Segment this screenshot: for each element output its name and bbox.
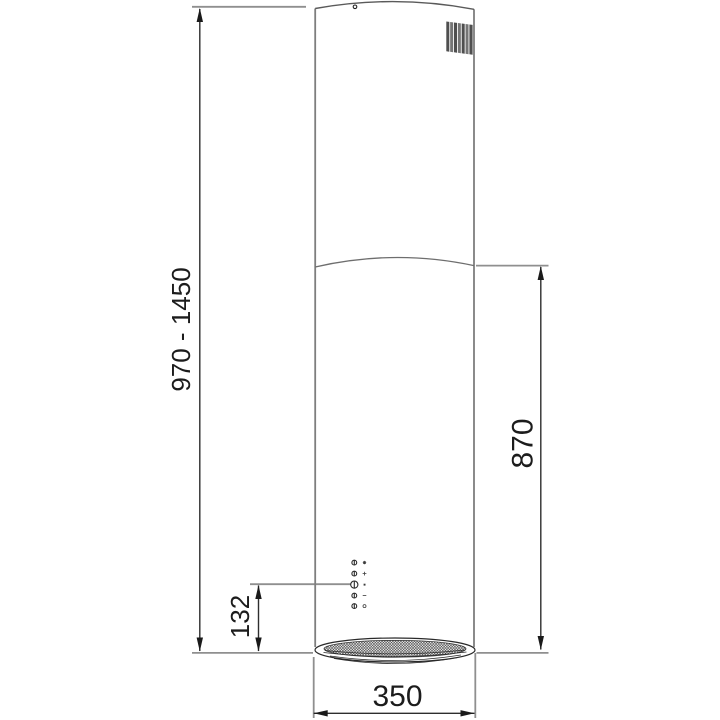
- svg-text:350: 350: [372, 680, 422, 713]
- svg-text:970 - 1450: 970 - 1450: [166, 267, 196, 391]
- svg-text:870: 870: [507, 418, 540, 468]
- svg-text:132: 132: [225, 595, 255, 638]
